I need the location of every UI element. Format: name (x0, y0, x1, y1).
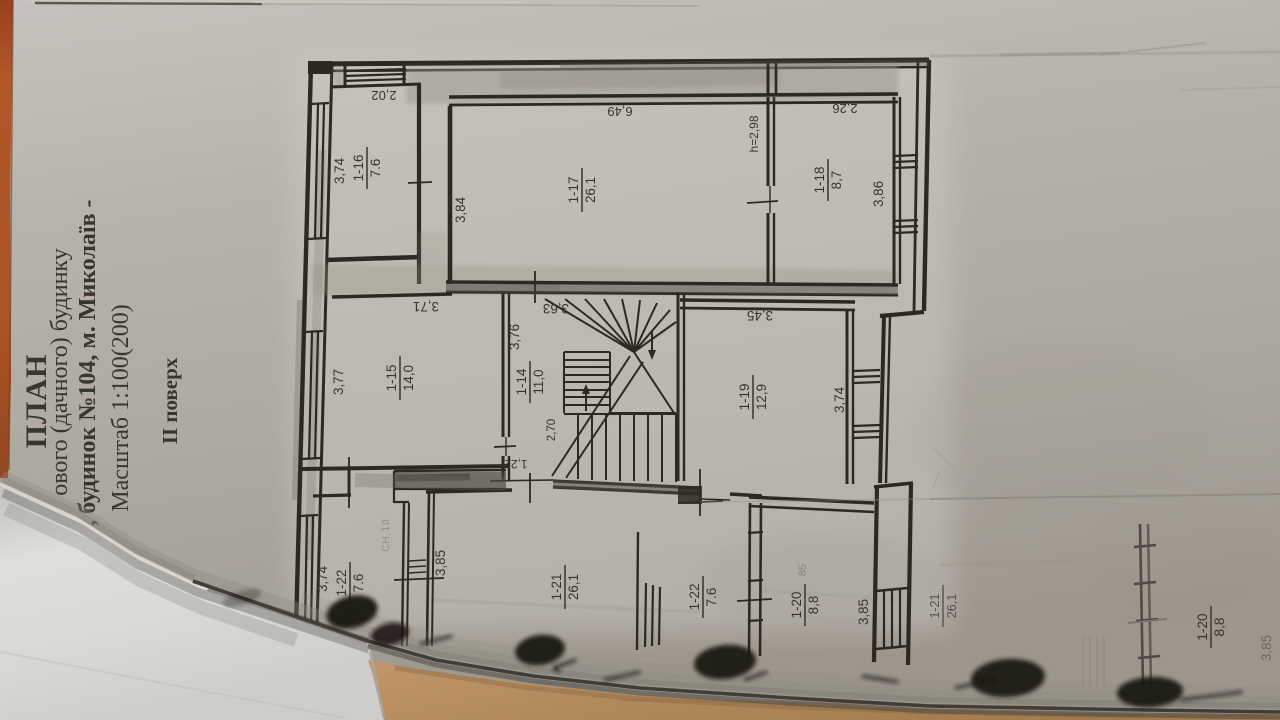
svg-text:7.6: 7.6 (704, 588, 719, 607)
svg-text:3,85: 3,85 (856, 599, 871, 625)
svg-text:2,02: 2,02 (371, 88, 396, 103)
svg-text:1-16: 1-16 (351, 155, 366, 182)
svg-text:1-18: 1-18 (812, 167, 827, 194)
svg-text:Масштаб 1:100(200): Масштаб 1:100(200) (108, 304, 134, 511)
svg-text:3,77: 3,77 (331, 369, 346, 395)
svg-text:3,85: 3,85 (433, 550, 448, 576)
svg-text:2,26: 2,26 (832, 101, 857, 116)
svg-text:3,85: 3,85 (1259, 635, 1274, 661)
svg-text:85: 85 (797, 564, 809, 576)
svg-text:1-21: 1-21 (549, 574, 564, 601)
svg-text:7.6: 7.6 (351, 574, 366, 593)
svg-text:26,1: 26,1 (945, 594, 959, 618)
svg-text:26,1: 26,1 (566, 574, 581, 600)
svg-text:8,8: 8,8 (1212, 618, 1227, 637)
svg-text:1-22: 1-22 (687, 584, 702, 611)
svg-text:3,86: 3,86 (871, 181, 886, 207)
svg-text:1-20: 1-20 (789, 592, 804, 619)
svg-text:1-15: 1-15 (384, 365, 399, 392)
svg-text:1-22: 1-22 (334, 570, 349, 597)
svg-text:1-14: 1-14 (514, 368, 529, 395)
svg-text:1-17: 1-17 (566, 177, 581, 204)
svg-text:h=2,98: h=2,98 (747, 115, 761, 152)
svg-text:3,71: 3,71 (413, 299, 439, 314)
svg-text:6,49: 6,49 (607, 104, 632, 119)
svg-text:3,76: 3,76 (507, 324, 522, 350)
svg-text:3,45: 3,45 (747, 308, 773, 323)
svg-text:1-19: 1-19 (737, 384, 752, 411)
svg-text:3,74: 3,74 (832, 386, 847, 413)
svg-text:ІІ поверх: ІІ поверх (158, 357, 182, 444)
svg-text:СН 10: СН 10 (381, 518, 392, 551)
svg-text:3,74: 3,74 (332, 157, 347, 184)
svg-text:3,84: 3,84 (453, 196, 468, 223)
svg-text:1-20: 1-20 (1195, 613, 1210, 641)
svg-text:26,1: 26,1 (583, 177, 598, 203)
svg-text:7.6: 7.6 (368, 159, 383, 178)
svg-text:ового (дачного) будинку: ового (дачного) будинку (47, 248, 73, 495)
svg-text:3,74: 3,74 (315, 565, 330, 592)
svg-text:1,22: 1,22 (504, 457, 528, 471)
svg-text:14,0: 14,0 (401, 365, 416, 391)
svg-text:8,8: 8,8 (806, 596, 821, 615)
svg-text:11,0: 11,0 (531, 369, 546, 394)
svg-text:8,7: 8,7 (829, 171, 844, 190)
svg-text:3,63: 3,63 (543, 301, 569, 316)
svg-text:1-21: 1-21 (928, 593, 942, 618)
svg-text:А", будинок №104, м. Миколаїв: А", будинок №104, м. Миколаїв - (75, 199, 101, 556)
svg-text:2,70: 2,70 (546, 419, 558, 441)
svg-text:12,9: 12,9 (754, 384, 769, 410)
